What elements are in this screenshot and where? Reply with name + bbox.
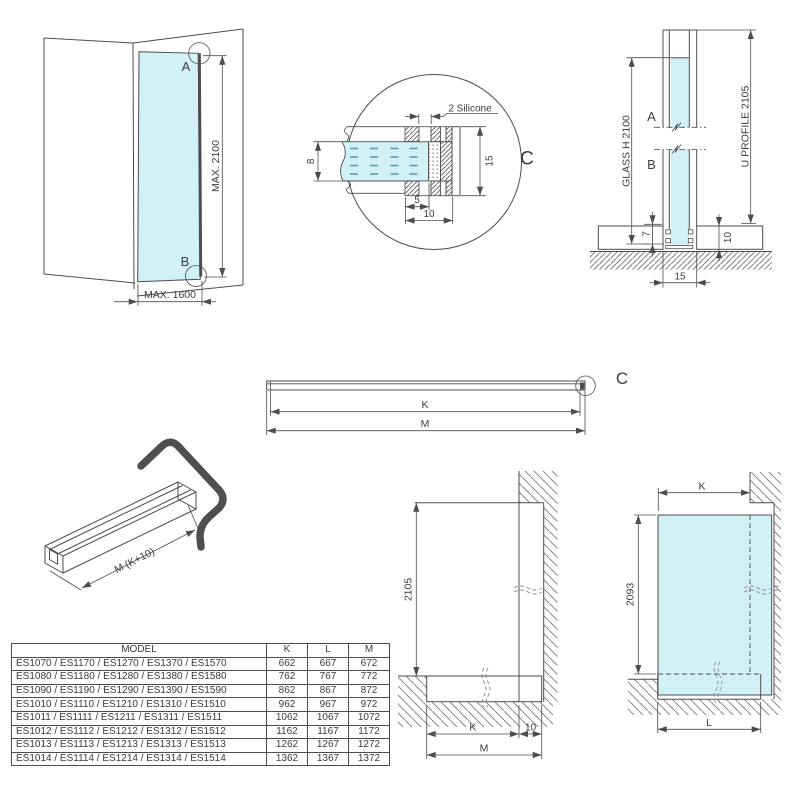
label-section-a: A (647, 109, 656, 124)
cell-model: ES1011 / ES1111 / ES1211 / ES1311 / ES15… (12, 711, 267, 725)
dim-label-glass-h-2100: GLASS H 2100 (621, 115, 633, 187)
glass-lower-segment (671, 150, 690, 246)
cell-l: 1067 (308, 711, 349, 725)
profile-end-cap (580, 383, 584, 390)
cell-m: 672 (349, 657, 390, 671)
table-header-row: MODEL K L M (12, 644, 390, 658)
profile-3d-view: M (K+10) (45, 442, 223, 590)
cell-model: ES1014 / ES1114 / ES1214 / ES1314 / ES15… (12, 752, 267, 766)
dim-bar-k: K (271, 391, 581, 416)
perspective-view: A B MAX. 2100 MAX. 1600 (44, 29, 243, 306)
cell-k: 1162 (267, 725, 308, 739)
dim-label-15-base: 15 (674, 272, 686, 283)
cell-k: 1262 (267, 739, 308, 753)
dim-label-7: 7 (642, 231, 653, 237)
cell-m: 1072 (349, 711, 390, 725)
cell-k: 962 (267, 698, 308, 712)
cell-model: ES1080 / ES1180 / ES1280 / ES1380 / ES15… (12, 671, 267, 685)
glass-panel (138, 52, 201, 282)
dim-label-silicone: 2 Silicone (448, 104, 492, 115)
cell-m: 972 (349, 698, 390, 712)
dim-label-5: 5 (414, 195, 420, 206)
wall-profile-edge (199, 53, 200, 276)
dim-label-m-k10: M (K+10) (113, 546, 157, 577)
table-row: ES1080 / ES1180 / ES1280 / ES1380 / ES15… (12, 671, 390, 685)
wall-hatch (519, 471, 558, 702)
bar-callout-letter: C (616, 369, 628, 388)
table-row: ES1013 / ES1113 / ES1213 / ES1313 / ES15… (12, 739, 390, 753)
dim-label-2105: 2105 (403, 578, 415, 602)
glass-panel-view: K 2093 L (625, 472, 782, 733)
dim-wall-height: 2105 (403, 503, 417, 676)
dim-silicone: 2 Silicone (405, 104, 498, 125)
vertical-section-view: A B GLASS H 2100 U PROFILE 2105 (590, 30, 772, 288)
cell-l: 967 (308, 698, 349, 712)
cell-l: 1367 (308, 752, 349, 766)
cell-model: ES1012 / ES1112 / ES1212 / ES1312 / ES15… (12, 725, 267, 739)
left-wall-outline (44, 38, 135, 289)
dim-label-8: 8 (306, 158, 317, 164)
cell-m: 1172 (349, 725, 390, 739)
dim-label-10-base: 10 (723, 232, 734, 244)
dim-label-15: 15 (485, 155, 496, 167)
profile-length-view: C K M (267, 369, 628, 435)
cell-m: 772 (349, 671, 390, 685)
header-k: K (267, 644, 308, 658)
break-lines (654, 123, 706, 154)
table-row: ES1070 / ES1170 / ES1270 / ES1370 / ES15… (12, 657, 390, 671)
detail-c-view: C (306, 75, 534, 250)
cell-k: 1362 (267, 752, 308, 766)
cell-l: 1267 (308, 739, 349, 753)
label-section-b: B (647, 157, 656, 172)
dim-label-2093: 2093 (625, 583, 637, 607)
profile-bar-lines (267, 381, 585, 390)
header-m: M (349, 644, 390, 658)
table-row: ES1014 / ES1114 / ES1214 / ES1314 / ES15… (12, 752, 390, 766)
profile-bar (267, 381, 585, 390)
dim-max-width: MAX. 1600 (114, 281, 216, 306)
dim-panel-k: K (658, 481, 750, 512)
glass-section (341, 142, 429, 181)
table-row: ES1011 / ES1111 / ES1211 / ES1311 / ES15… (12, 711, 390, 725)
dim-label-bar-m: M (421, 418, 430, 430)
label-point-b: B (181, 254, 190, 269)
dim-panel-height: 2093 (625, 515, 657, 674)
dim-label-panel-k: K (698, 481, 705, 493)
dim-label-10-offset: 10 (525, 723, 537, 734)
label-point-a: A (182, 59, 191, 74)
cell-k: 862 (267, 684, 308, 698)
dim-glass-thickness: 8 (306, 142, 344, 181)
header-model: MODEL (12, 644, 267, 658)
cell-l: 1167 (308, 725, 349, 739)
dim-bar-m: M (267, 391, 585, 435)
dim-label-u-profile-2105: U PROFILE 2105 (740, 85, 752, 167)
cell-m: 872 (349, 684, 390, 698)
dim-u-profile-length: U PROFILE 2105 (697, 30, 756, 224)
wall-floor-section-view: 2105 K 10 M (398, 471, 558, 759)
dim-profile-height: 15 (461, 127, 496, 196)
floor-profile-left (598, 226, 663, 249)
header-l: L (308, 644, 349, 658)
table-row: ES1012 / ES1112 / ES1212 / ES1312 / ES15… (12, 725, 390, 739)
glass-upper-segment (671, 58, 690, 127)
dim-label-bar-k: K (421, 399, 428, 411)
model-spec-table: MODEL K L M ES1070 / ES1170 / ES1270 / E… (11, 643, 390, 766)
dim-label-panel-l: L (706, 717, 712, 729)
cell-model: ES1070 / ES1170 / ES1270 / ES1370 / ES15… (12, 657, 267, 671)
dim-insert-depth: 7 (642, 212, 665, 257)
cell-m: 1372 (349, 752, 390, 766)
dim-label-10: 10 (423, 209, 435, 220)
profile-end-face (45, 546, 63, 573)
cell-k: 1062 (267, 711, 308, 725)
silicone-pad (429, 142, 441, 181)
cell-k: 662 (267, 657, 308, 671)
detail-callout-letter: C (520, 149, 534, 170)
cell-l: 867 (308, 684, 349, 698)
dim-label-k: K (469, 722, 476, 734)
profile-extrusion-lines (45, 482, 196, 573)
dim-label-max-2100: MAX. 2100 (210, 140, 222, 192)
cell-l: 767 (308, 671, 349, 685)
cell-model: ES1090 / ES1190 / ES1290 / ES1390 / ES15… (12, 684, 267, 698)
cell-model: ES1013 / ES1113 / ES1213 / ES1313 / ES15… (12, 739, 267, 753)
floor-profile (427, 676, 542, 702)
table-row: ES1090 / ES1190 / ES1290 / ES1390 / ES15… (12, 684, 390, 698)
technical-drawing-sheet: A B MAX. 2100 MAX. 1600 C (0, 0, 800, 800)
glass-panel-front (658, 515, 772, 695)
cell-l: 667 (308, 657, 349, 671)
cell-model: ES1010 / ES1110 / ES1210 / ES1310 / ES15… (12, 698, 267, 712)
cell-k: 762 (267, 671, 308, 685)
break-marks (482, 586, 542, 707)
table-row: ES1010 / ES1110 / ES1210 / ES1310 / ES15… (12, 698, 390, 712)
ground-hatch (590, 252, 772, 270)
cell-m: 1272 (349, 739, 390, 753)
profile-outer-face (452, 127, 460, 196)
dim-label-m: M (480, 743, 489, 755)
dim-label-max-1600: MAX. 1600 (144, 289, 196, 301)
dim-max-height: MAX. 2100 (203, 56, 227, 277)
